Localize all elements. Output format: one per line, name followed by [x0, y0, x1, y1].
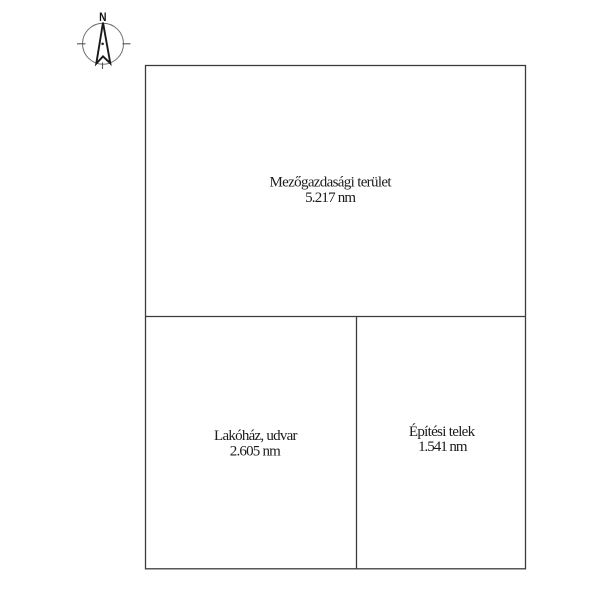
svg-text:Lakóház, udvar: Lakóház, udvar: [214, 428, 297, 444]
svg-text:Mezőgazdasági terület: Mezőgazdasági terület: [270, 175, 393, 191]
svg-text:Építési telek: Építési telek: [409, 423, 476, 440]
svg-text:5.217 nm: 5.217 nm: [305, 190, 356, 206]
svg-text:2.605 nm: 2.605 nm: [230, 444, 281, 460]
svg-text:N: N: [99, 10, 106, 24]
svg-text:1.541 nm: 1.541 nm: [418, 439, 468, 455]
